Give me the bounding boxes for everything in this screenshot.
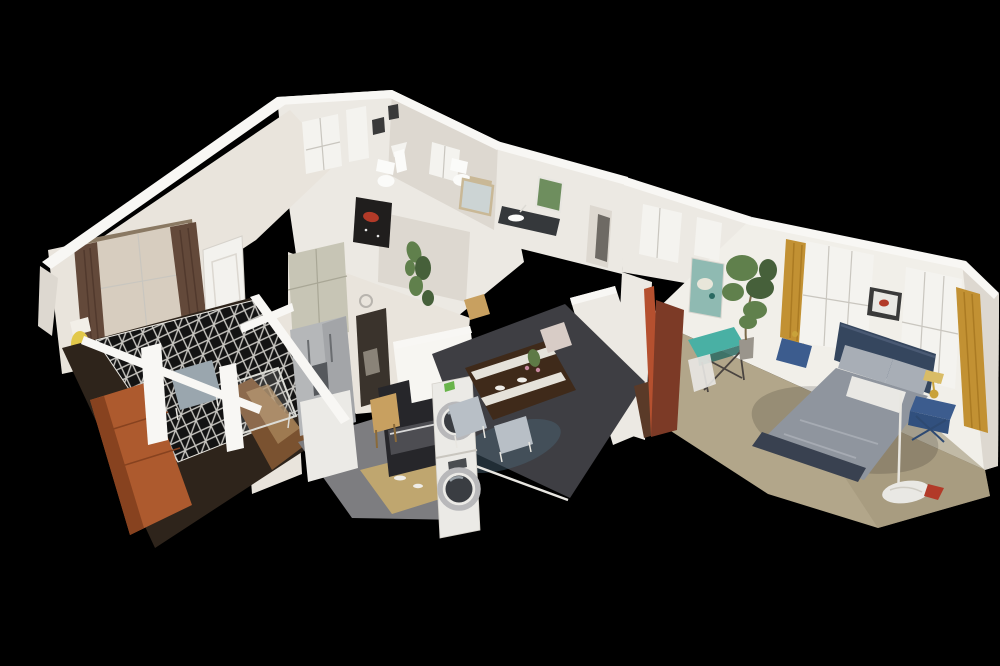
place-setting: [495, 386, 505, 391]
window-sheer: [639, 204, 682, 263]
bar-stool: [370, 393, 400, 433]
art-speck: [377, 235, 380, 238]
window-sheer: [346, 106, 369, 162]
gold-lamp-small: [792, 331, 798, 337]
vanity-sink: [508, 215, 524, 222]
abstract-wall-art: [353, 197, 392, 248]
picture-frame: [388, 104, 399, 120]
centerpiece-flower: [525, 366, 529, 370]
dish: [394, 476, 406, 481]
place-setting: [517, 378, 527, 383]
bathroom-window-green-view: [536, 177, 563, 212]
bathroom-mirror: [460, 179, 493, 215]
toilet-bowl: [378, 175, 395, 187]
washer-door-glass: [446, 476, 473, 503]
art-speck: [365, 229, 368, 232]
centerpiece-flower: [536, 368, 540, 372]
picture-art: [879, 300, 889, 307]
picture-frame: [372, 117, 385, 135]
window-sheer: [694, 217, 722, 261]
dish: [413, 484, 423, 488]
dollhouse-3d-viewer-canvas[interactable]: [0, 0, 1000, 666]
painting-swirl: [697, 278, 713, 290]
dollhouse-scene: [0, 0, 1000, 666]
painting-detail: [709, 293, 715, 299]
doorway-sink-glimpse: [363, 348, 380, 376]
